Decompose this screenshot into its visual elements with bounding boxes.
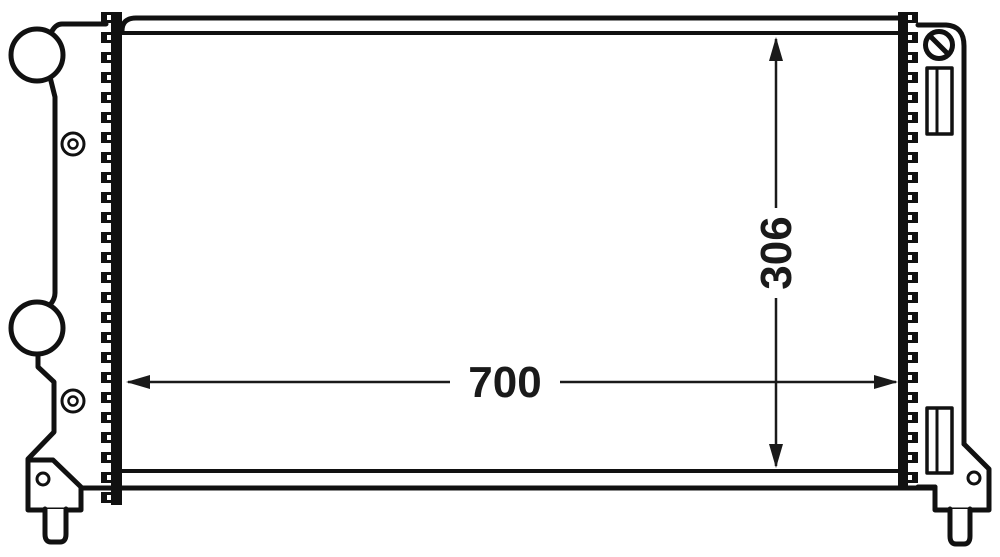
width-arrowhead-left-icon	[126, 375, 150, 389]
left-mounting-foot	[28, 460, 81, 542]
width-arrowhead-right-icon	[874, 375, 898, 389]
radiator-core-frame	[80, 18, 935, 488]
upper-grommet	[62, 133, 84, 155]
upper-slot-tab	[927, 68, 952, 134]
bracket-side-edge-upper	[50, 77, 55, 305]
filler-cap	[926, 32, 953, 59]
left-foot-body	[28, 460, 81, 510]
radiator-line-drawing: 700 306	[0, 0, 1000, 557]
left-strip-crimp-teeth	[101, 12, 111, 505]
right-foot-hole	[968, 472, 980, 484]
height-arrowhead-bottom-icon	[769, 444, 783, 468]
lower-slot-outline	[927, 408, 952, 473]
lower-hose-port	[11, 302, 63, 354]
width-dimension-label: 700	[468, 358, 541, 407]
height-arrowhead-top-icon	[769, 37, 783, 61]
left-strip-bar	[111, 12, 122, 505]
right-tank-gasket-strip	[898, 12, 918, 489]
bracket-top-edge	[52, 24, 106, 31]
height-dimension-label: 306	[752, 216, 801, 289]
lower-grommet-inner-ring	[69, 397, 78, 406]
upper-hose-port	[11, 29, 63, 81]
lower-grommet-outer-ring	[62, 390, 84, 412]
bracket-side-edge-lower	[28, 354, 54, 459]
upper-grommet-outer-ring	[62, 133, 84, 155]
left-tank-gasket-strip	[101, 12, 122, 505]
radiator-technical-drawing: 700 306	[0, 0, 1000, 557]
width-dimension: 700	[126, 358, 898, 407]
left-mounting-bracket	[11, 24, 106, 459]
left-mounting-peg	[45, 509, 66, 542]
core-top-outer-line	[122, 18, 898, 31]
height-dimension: 306	[752, 37, 801, 468]
right-tank	[918, 25, 964, 473]
right-mounting-peg	[950, 509, 970, 544]
lower-grommet	[62, 390, 84, 412]
upper-grommet-inner-ring	[69, 140, 78, 149]
lower-slot-tab	[927, 408, 952, 473]
right-strip-crimp-teeth	[908, 12, 918, 489]
upper-slot-outline	[927, 68, 952, 134]
right-strip-bar	[898, 12, 908, 489]
